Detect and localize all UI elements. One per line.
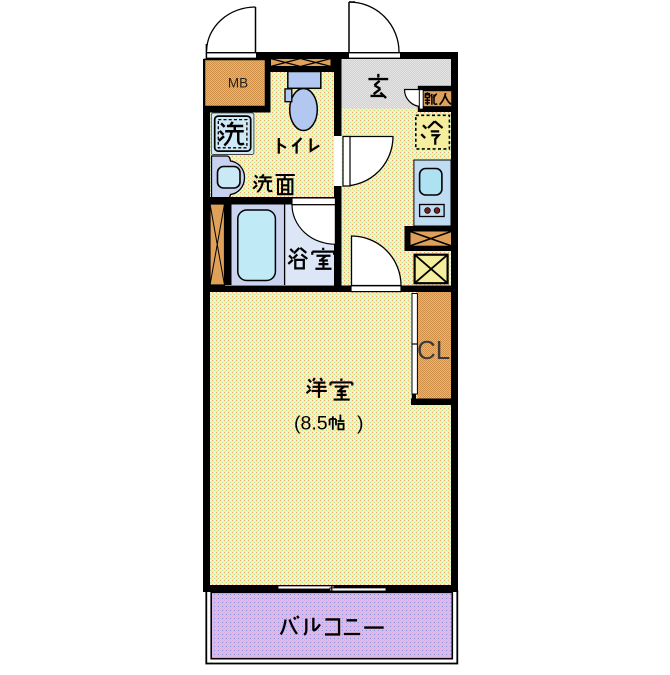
svg-text:): ): [357, 413, 364, 435]
svg-text:MB: MB: [228, 75, 248, 90]
svg-text:(8.5: (8.5: [294, 413, 328, 435]
svg-text:CL: CL: [417, 335, 450, 365]
